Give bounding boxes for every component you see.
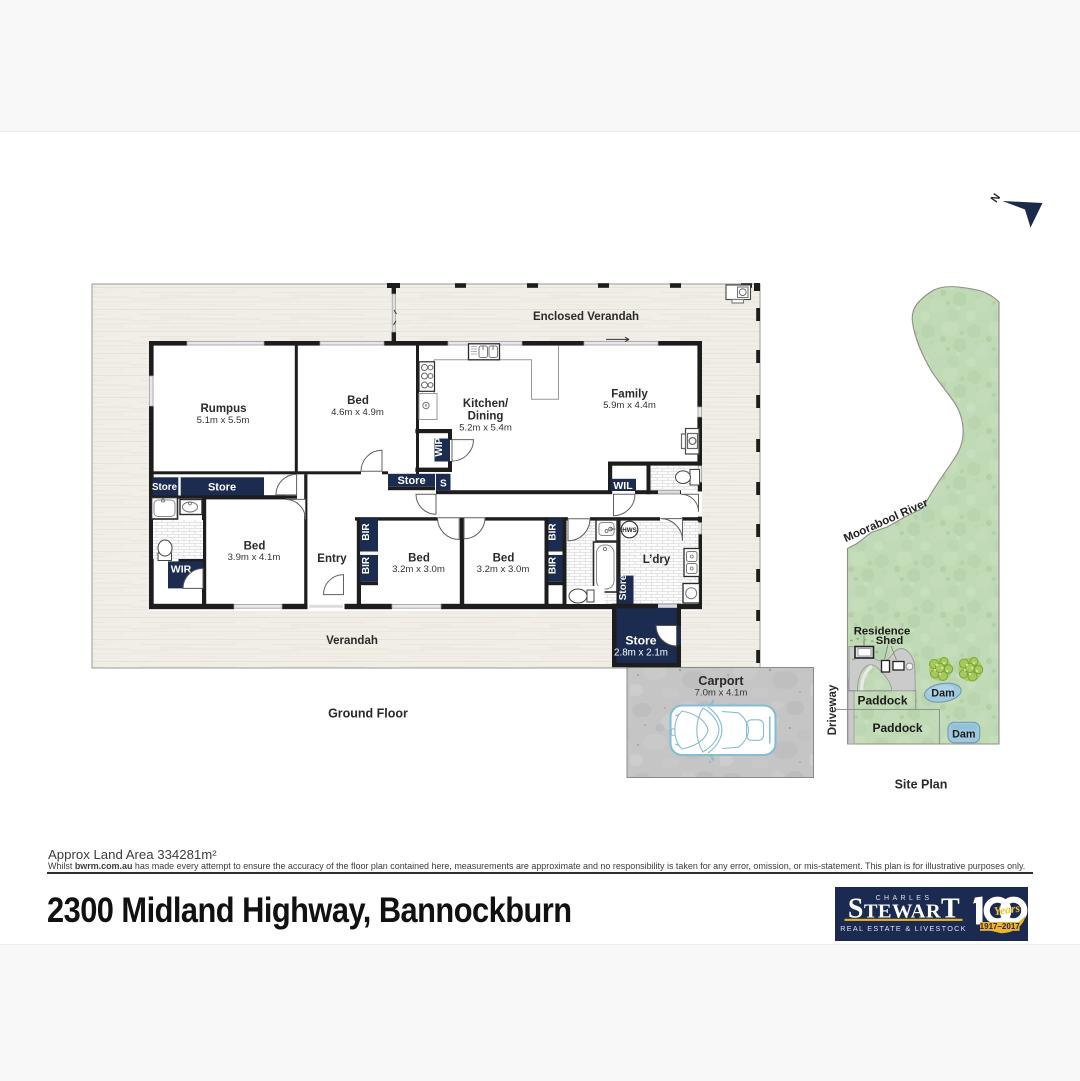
svg-text:Enclosed Verandah: Enclosed Verandah	[533, 311, 639, 323]
svg-text:BIR: BIR	[361, 556, 372, 574]
svg-text:Rumpus: Rumpus	[201, 403, 247, 415]
svg-text:Dam: Dam	[931, 687, 954, 699]
svg-text:Bed: Bed	[493, 553, 515, 565]
svg-text:Bed: Bed	[408, 553, 430, 565]
svg-text:5.1m x 5.5m: 5.1m x 5.5m	[197, 415, 250, 426]
svg-text:BIR: BIR	[548, 523, 559, 541]
svg-text:Verandah: Verandah	[326, 635, 378, 647]
svg-text:Bed: Bed	[347, 395, 369, 407]
svg-text:Store: Store	[208, 482, 236, 494]
svg-text:Store: Store	[625, 634, 656, 648]
svg-text:WIP: WIP	[434, 437, 445, 456]
svg-text:3.2m x 3.0m: 3.2m x 3.0m	[477, 564, 530, 575]
svg-text:3.2m x 3.0m: 3.2m x 3.0m	[392, 564, 445, 575]
svg-text:Entry: Entry	[317, 553, 347, 565]
svg-text:Ground Floor: Ground Floor	[328, 707, 408, 721]
svg-text:Shed: Shed	[876, 635, 904, 647]
svg-text:L’dry: L’dry	[643, 554, 671, 566]
svg-text:4.6m x 4.9m: 4.6m x 4.9m	[331, 407, 384, 418]
svg-text:BIR: BIR	[361, 523, 372, 541]
svg-text:Dining: Dining	[468, 411, 504, 423]
svg-text:Site Plan: Site Plan	[895, 778, 948, 792]
svg-text:WIL: WIL	[613, 480, 633, 492]
svg-text:Store: Store	[618, 574, 629, 600]
svg-text:5.2m x 5.4m: 5.2m x 5.4m	[459, 423, 512, 434]
svg-text:Family: Family	[611, 389, 648, 401]
svg-text:WIR: WIR	[171, 564, 192, 576]
svg-text:Store: Store	[397, 475, 425, 487]
svg-text:Dam: Dam	[952, 728, 975, 740]
svg-text:HWS: HWS	[622, 527, 636, 534]
svg-text:Paddock: Paddock	[857, 694, 907, 708]
svg-text:N: N	[989, 192, 1003, 205]
svg-text:Paddock: Paddock	[872, 721, 922, 735]
svg-text:BIR: BIR	[548, 556, 559, 574]
svg-text:3.9m x 4.1m: 3.9m x 4.1m	[228, 552, 281, 563]
svg-text:Bed: Bed	[244, 541, 266, 553]
svg-text:7.0m x 4.1m: 7.0m x 4.1m	[695, 688, 748, 699]
svg-text:5.9m x 4.4m: 5.9m x 4.4m	[603, 400, 656, 411]
svg-text:2.8m x 2.1m: 2.8m x 2.1m	[614, 648, 668, 659]
svg-text:Kitchen/: Kitchen/	[463, 398, 509, 410]
svg-text:S: S	[440, 479, 447, 490]
svg-text:Carport: Carport	[698, 674, 744, 688]
svg-text:Store: Store	[152, 482, 178, 493]
